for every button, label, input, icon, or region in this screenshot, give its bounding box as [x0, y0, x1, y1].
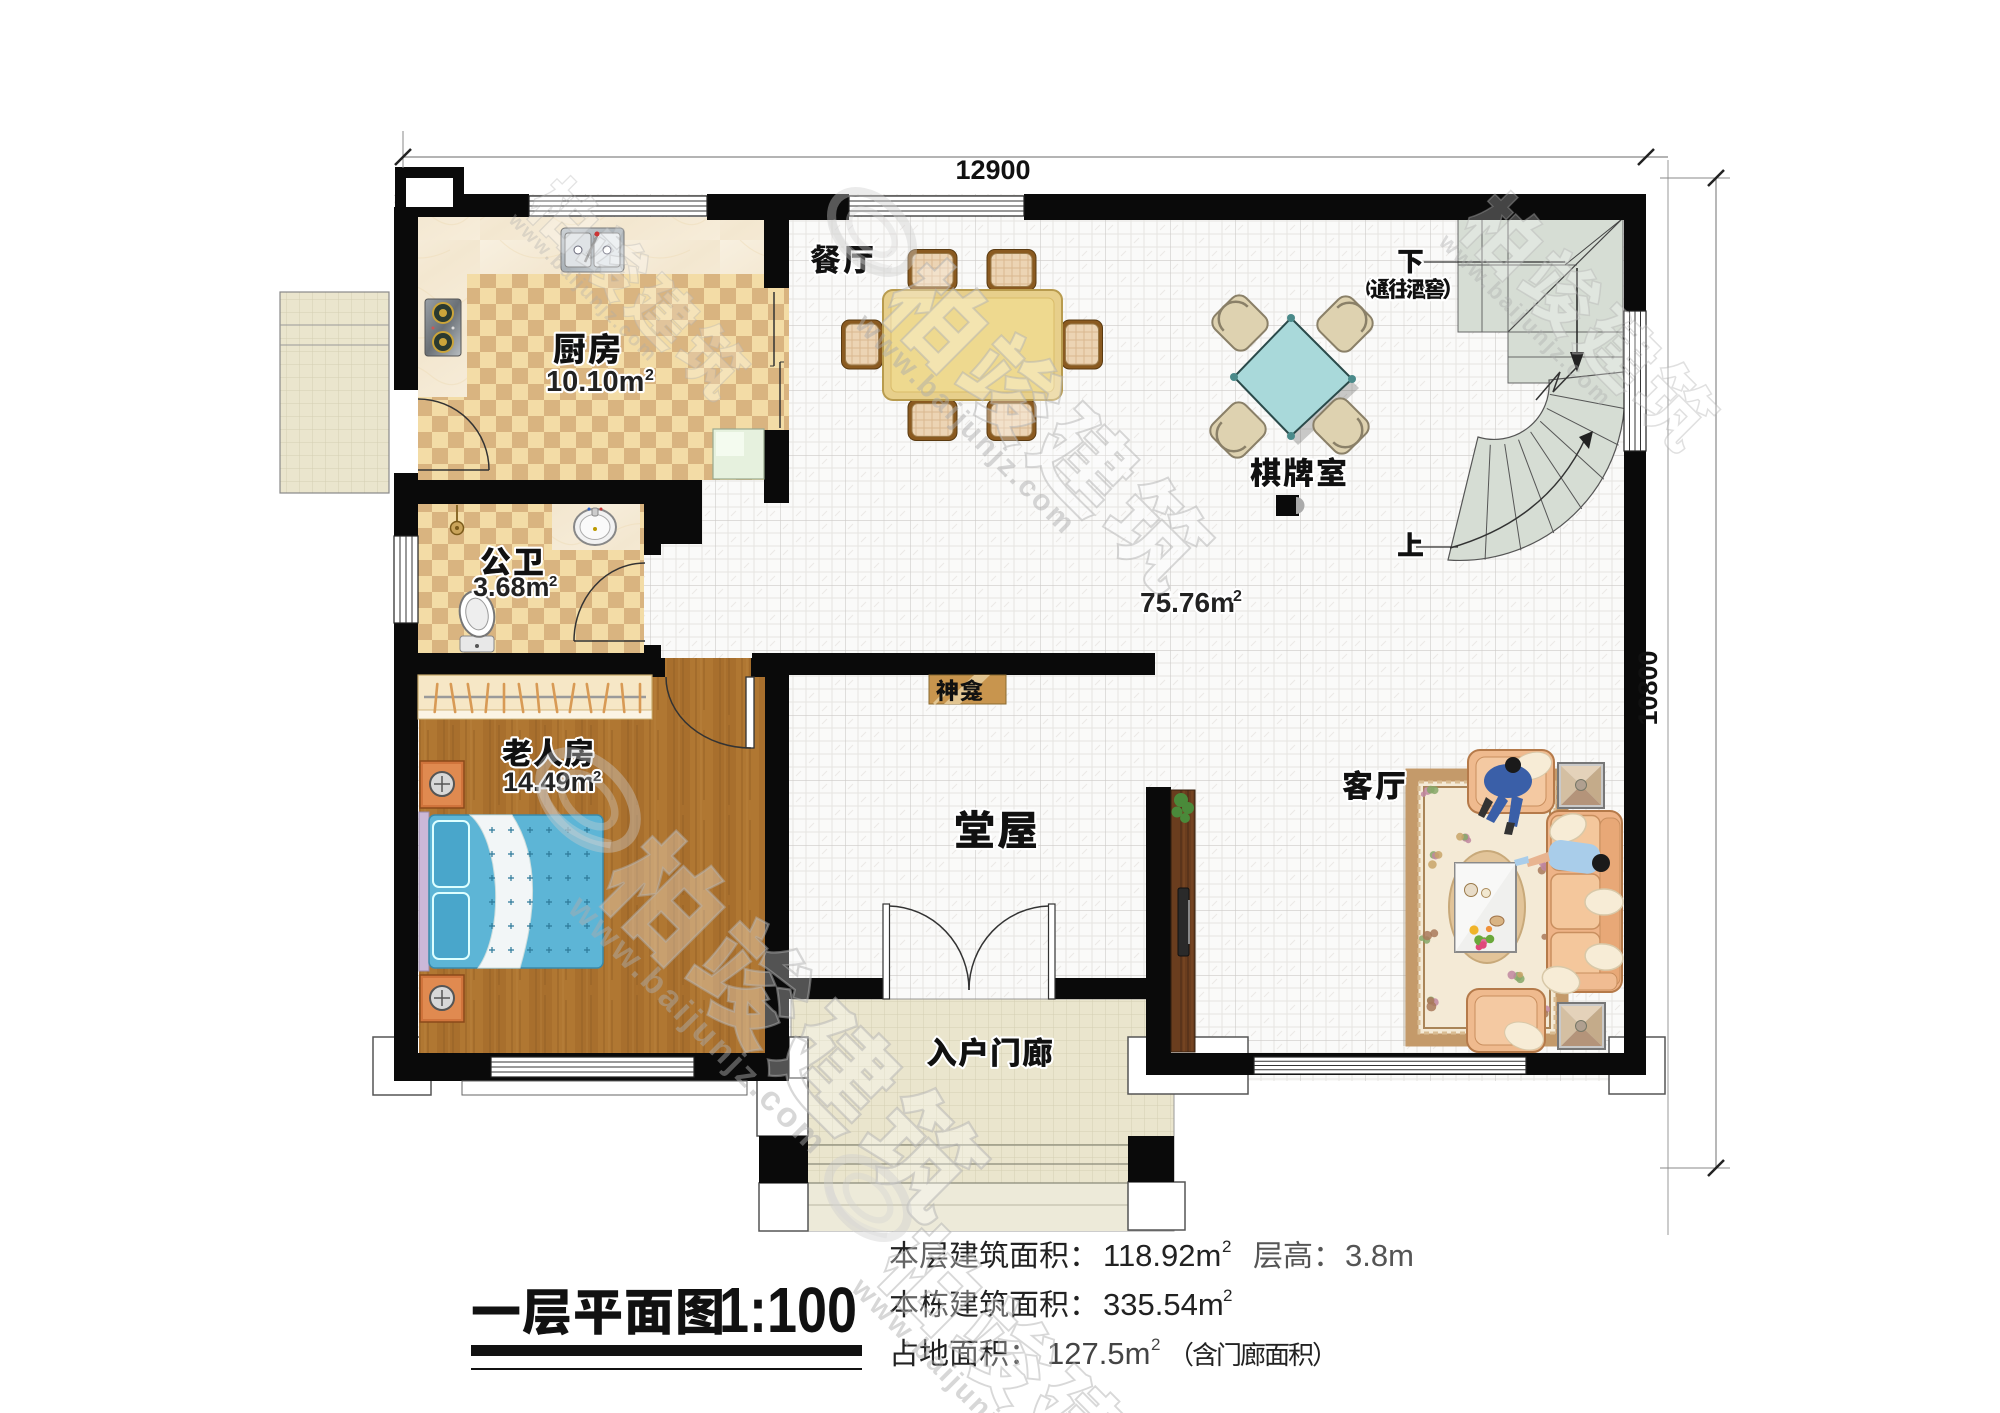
- svg-text:10800: 10800: [1633, 650, 1663, 725]
- svg-text:2: 2: [1223, 1286, 1232, 1305]
- svg-text:2: 2: [645, 367, 654, 384]
- svg-text:10.10m: 10.10m: [546, 366, 644, 398]
- svg-text:2: 2: [1151, 1335, 1160, 1354]
- svg-text:335.54m: 335.54m: [1103, 1287, 1224, 1322]
- svg-text:2: 2: [549, 573, 557, 590]
- svg-text:118.92m: 118.92m: [1103, 1238, 1221, 1273]
- svg-text:3.68m: 3.68m: [473, 572, 550, 602]
- svg-text:127.5m: 127.5m: [1047, 1336, 1150, 1371]
- svg-text:1:100: 1:100: [719, 1274, 857, 1346]
- svg-text:12900: 12900: [955, 155, 1030, 185]
- svg-text:3.8m: 3.8m: [1345, 1238, 1414, 1273]
- svg-text:2: 2: [1233, 588, 1242, 605]
- svg-text:2: 2: [1222, 1237, 1231, 1256]
